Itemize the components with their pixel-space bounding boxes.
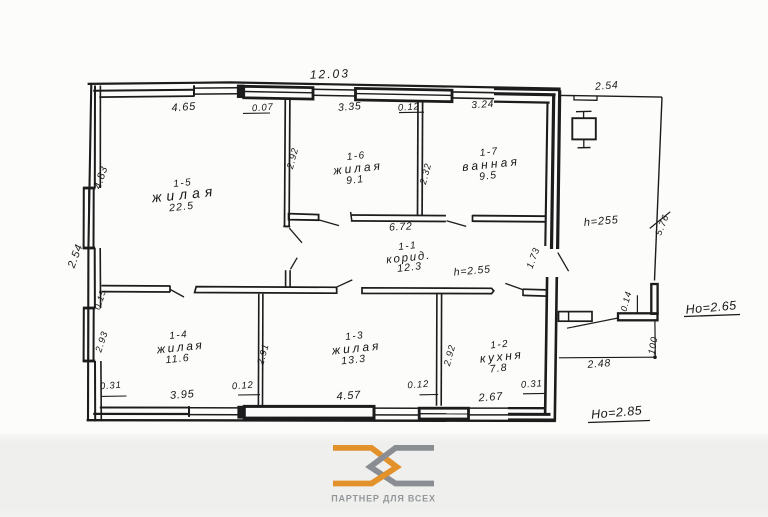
svg-text:3.95: 3.95 (170, 388, 195, 402)
svg-text:6.72: 6.72 (389, 220, 413, 233)
svg-text:2.48: 2.48 (586, 357, 611, 371)
svg-text:0.31: 0.31 (521, 378, 543, 390)
svg-text:9.1: 9.1 (346, 173, 365, 187)
svg-text:0.31: 0.31 (100, 380, 122, 392)
svg-text:2.54: 2.54 (594, 79, 619, 93)
svg-text:3.35: 3.35 (338, 100, 362, 114)
svg-text:2.67: 2.67 (477, 391, 503, 405)
svg-text:0.07: 0.07 (252, 102, 274, 114)
svg-text:ПАРТНЕР ДЛЯ ВСЕХ: ПАРТНЕР ДЛЯ ВСЕХ (331, 494, 436, 504)
svg-text:9.5: 9.5 (479, 169, 498, 183)
svg-text:4.65: 4.65 (171, 101, 196, 115)
svg-text:3.24: 3.24 (471, 99, 494, 112)
svg-text:0.12: 0.12 (407, 379, 429, 391)
svg-text:0.12: 0.12 (232, 380, 254, 392)
svg-text:4.57: 4.57 (336, 389, 361, 403)
svg-text:11.6: 11.6 (165, 352, 191, 366)
svg-text:7.8: 7.8 (489, 362, 508, 376)
svg-text:12.03: 12.03 (310, 66, 350, 81)
